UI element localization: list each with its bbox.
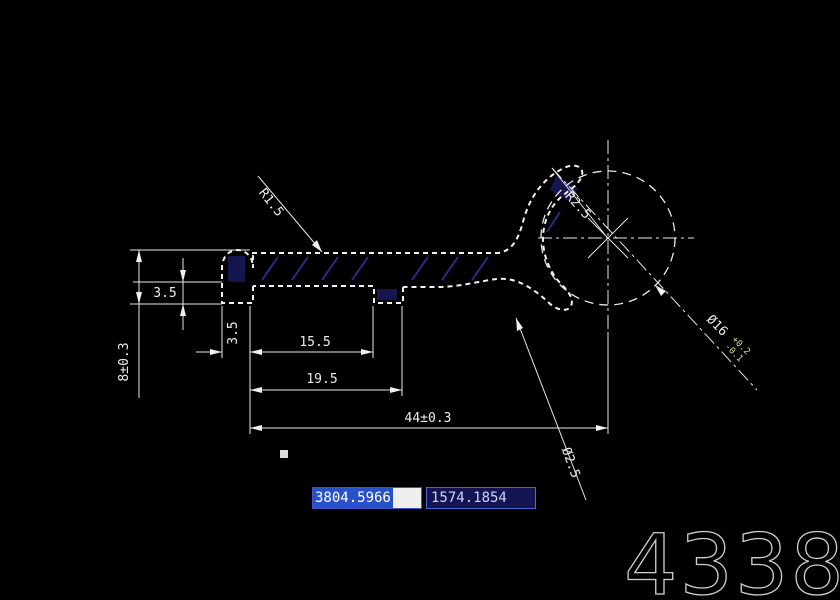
watermark-text: 4338	[624, 516, 840, 600]
coord-x-field[interactable]: 3804.5966	[312, 487, 422, 509]
profile-top-and-head	[252, 166, 582, 310]
part-outline	[222, 166, 582, 310]
section-hatch	[262, 212, 560, 280]
coord-y-value: 1574.1854	[431, 490, 507, 506]
extension-lines	[130, 250, 608, 434]
dim-step-height: 3.5	[153, 286, 176, 301]
dim-fillet-radius: R1.5	[255, 186, 286, 220]
section-fills	[228, 176, 578, 300]
arrowheads	[136, 240, 666, 431]
bore-and-centerlines	[538, 140, 757, 390]
dim-tab-width: 3.5	[226, 321, 241, 344]
dim-notch-length: 19.5	[306, 372, 337, 387]
dimension-texts: R1.5 8±0.3 3.5 3.5 15.5 19.5 44±0.3 R2.5…	[117, 186, 752, 480]
cad-viewport[interactable]: R1.5 8±0.3 3.5 3.5 15.5 19.5 44±0.3 R2.5…	[0, 0, 840, 600]
dim-overall-length: 44±0.3	[405, 411, 452, 426]
dim-head-radius: R2.5	[562, 189, 594, 222]
dim-overall-height: 8±0.3	[117, 342, 132, 381]
drawing-canvas[interactable]: R1.5 8±0.3 3.5 3.5 15.5 19.5 44±0.3 R2.5…	[0, 0, 840, 600]
dim-section-label: Ø2.5	[558, 446, 583, 481]
grip-square[interactable]	[280, 450, 288, 458]
dim-inner-length: 15.5	[299, 335, 330, 350]
coord-x-value: 3804.5966	[313, 488, 393, 508]
dim-bore-diameter: Ø16	[703, 312, 730, 339]
coord-y-field[interactable]: 1574.1854	[426, 487, 536, 509]
